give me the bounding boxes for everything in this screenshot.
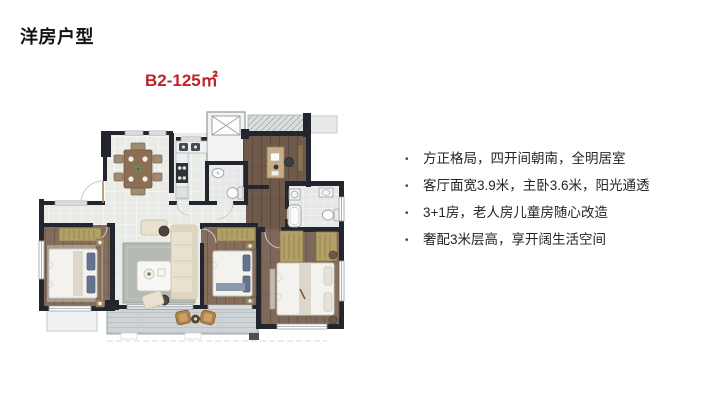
- elevator-shaft: [212, 116, 240, 135]
- feature-item: • 3+1房，老人房儿童房随心改造: [404, 205, 709, 220]
- stove: [176, 163, 188, 183]
- bullet-icon: •: [405, 206, 409, 221]
- bullet-icon: •: [405, 152, 409, 167]
- bed: [49, 247, 101, 299]
- bed-bench: [270, 269, 275, 309]
- feature-item: • 方正格局，四开间朝南，全明居室: [404, 151, 709, 166]
- floor-plan-image: [37, 103, 367, 345]
- sofa: [171, 225, 197, 299]
- bed: [277, 261, 339, 317]
- wardrobe: [217, 228, 255, 241]
- toilet: [227, 187, 243, 199]
- ac-platform: [309, 116, 337, 133]
- side-table: [159, 226, 169, 236]
- fridge: [176, 187, 188, 198]
- feature-text: 奢配3米层高，享开阔生活空间: [423, 232, 606, 247]
- nightstand: [329, 251, 337, 259]
- wardrobe: [59, 228, 101, 241]
- feature-list: • 方正格局，四开间朝南，全明居室 • 客厅面宽3.9米，主卧3.6米，阳光通透…: [404, 151, 709, 259]
- bullet-icon: •: [405, 233, 409, 248]
- coffee-table: [137, 261, 171, 291]
- small-balcony: [47, 308, 97, 331]
- feature-text: 方正格局，四开间朝南，全明居室: [423, 151, 626, 166]
- toilet: [322, 209, 339, 221]
- feature-text: 客厅面宽3.9米，主卧3.6米，阳光通透: [423, 178, 650, 193]
- vanity-sink: [319, 188, 333, 197]
- bathtub: [288, 205, 301, 227]
- bookshelf: [298, 145, 303, 171]
- feature-item: • 奢配3米层高，享开阔生活空间: [404, 232, 709, 247]
- page-title: 洋房户型: [20, 23, 94, 49]
- entry-door: [81, 181, 103, 203]
- bedroom-2: [213, 228, 256, 304]
- bed: [213, 249, 256, 297]
- feature-text: 3+1房，老人房儿童房随心改造: [423, 205, 608, 220]
- washing-machine: [289, 189, 300, 200]
- nightstand: [329, 316, 337, 324]
- bullet-icon: •: [405, 179, 409, 194]
- feature-item: • 客厅面宽3.9米，主卧3.6米，阳光通透: [404, 178, 709, 193]
- desk-chair: [284, 157, 293, 166]
- suite-corridor-floor: [246, 185, 287, 229]
- floor-plan-label: B2-125㎡: [145, 66, 218, 91]
